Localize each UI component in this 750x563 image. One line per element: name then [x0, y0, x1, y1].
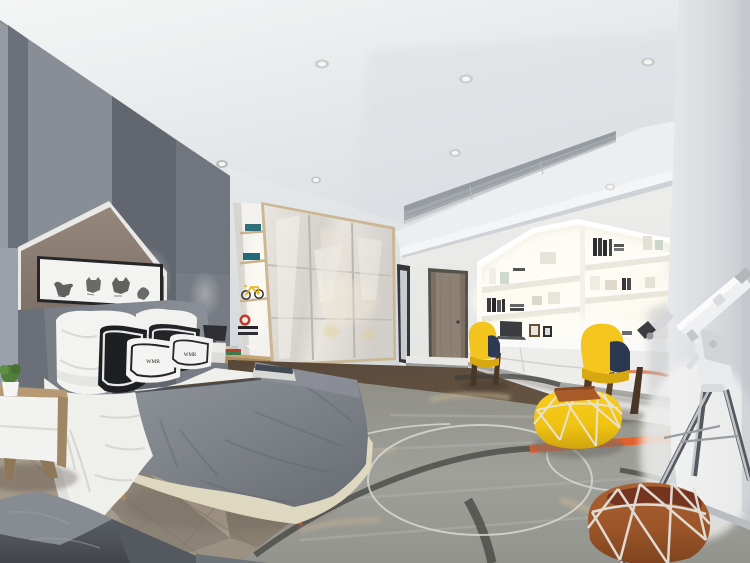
svg-text:WMR: WMR	[146, 359, 160, 365]
svg-text:WMR: WMR	[184, 353, 197, 358]
